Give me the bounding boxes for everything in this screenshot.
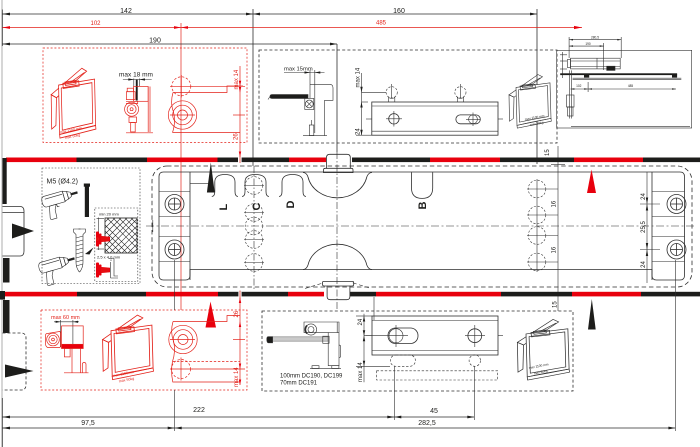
svg-text:26: 26 <box>234 310 240 317</box>
svg-text:16: 16 <box>552 246 558 253</box>
svg-text:280,5: 280,5 <box>591 36 599 40</box>
svg-text:max 14: max 14 <box>358 362 364 382</box>
svg-text:M5 (Ø4.2): M5 (Ø4.2) <box>47 179 79 186</box>
svg-text:70mm DC191: 70mm DC191 <box>280 381 318 387</box>
svg-text:100mm DC190, DC199: 100mm DC190, DC199 <box>280 373 343 379</box>
svg-text:142: 142 <box>120 8 132 15</box>
svg-text:15: 15 <box>545 149 551 156</box>
svg-text:D: D <box>285 201 297 209</box>
svg-text:24: 24 <box>641 193 647 200</box>
svg-text:24: 24 <box>641 261 647 268</box>
svg-text:L: L <box>218 204 230 211</box>
svg-text:max 14: max 14 <box>234 69 240 89</box>
svg-text:102: 102 <box>90 21 101 27</box>
svg-text:190: 190 <box>149 37 161 44</box>
svg-text:102: 102 <box>576 84 582 88</box>
svg-text:485: 485 <box>628 84 634 88</box>
svg-text:485: 485 <box>376 21 387 27</box>
svg-text:max 14: max 14 <box>356 67 362 87</box>
svg-text:24: 24 <box>356 128 362 135</box>
svg-text:B: B <box>417 202 429 210</box>
svg-text:max 15mm: max 15mm <box>284 67 313 73</box>
svg-text:C: C <box>251 203 263 211</box>
svg-text:97,5: 97,5 <box>81 420 95 427</box>
svg-text:282,5: 282,5 <box>418 420 436 427</box>
svg-text:160: 160 <box>393 8 405 15</box>
svg-text:max 60 mm: max 60 mm <box>51 315 80 321</box>
svg-text:45: 45 <box>430 408 438 415</box>
svg-text:222: 222 <box>193 407 205 414</box>
svg-text:max 14: max 14 <box>234 367 240 387</box>
svg-text:190: 190 <box>585 42 591 46</box>
svg-text:min 20 mm: min 20 mm <box>99 212 119 217</box>
svg-text:15: 15 <box>553 301 559 308</box>
svg-text:25,5: 25,5 <box>641 221 647 233</box>
svg-text:26: 26 <box>234 133 240 140</box>
svg-text:16: 16 <box>552 200 558 207</box>
svg-text:max 18 mm: max 18 mm <box>119 72 153 79</box>
svg-text:24: 24 <box>358 318 364 325</box>
